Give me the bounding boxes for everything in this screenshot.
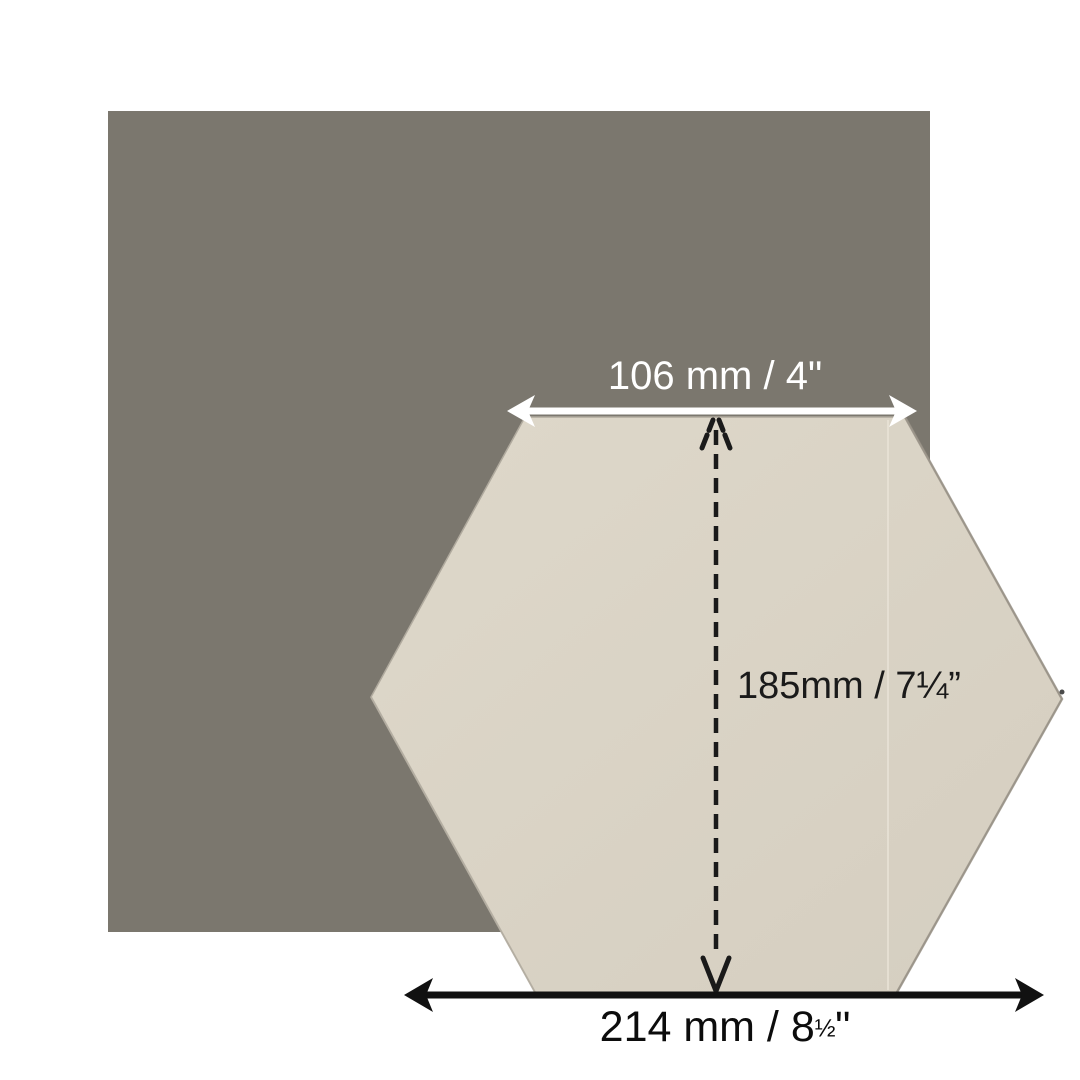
overall-width-label-prefix: 214 mm / 8 [600,1003,815,1051]
diagram-graphics [0,0,1080,1080]
overall-width-label: 214 mm / 8½" [505,1005,945,1050]
overall-width-label-fraction: ½ [815,1015,835,1043]
height-label: 185mm / 7¼” [737,667,961,707]
right-vertex-mark [1060,690,1065,695]
overall-width-label-suffix: " [835,1003,850,1051]
tile-dimension-diagram: 106 mm / 4" 185mm / 7¼” 214 mm / 8½" [0,0,1080,1080]
top-width-label: 106 mm / 4" [505,355,925,397]
